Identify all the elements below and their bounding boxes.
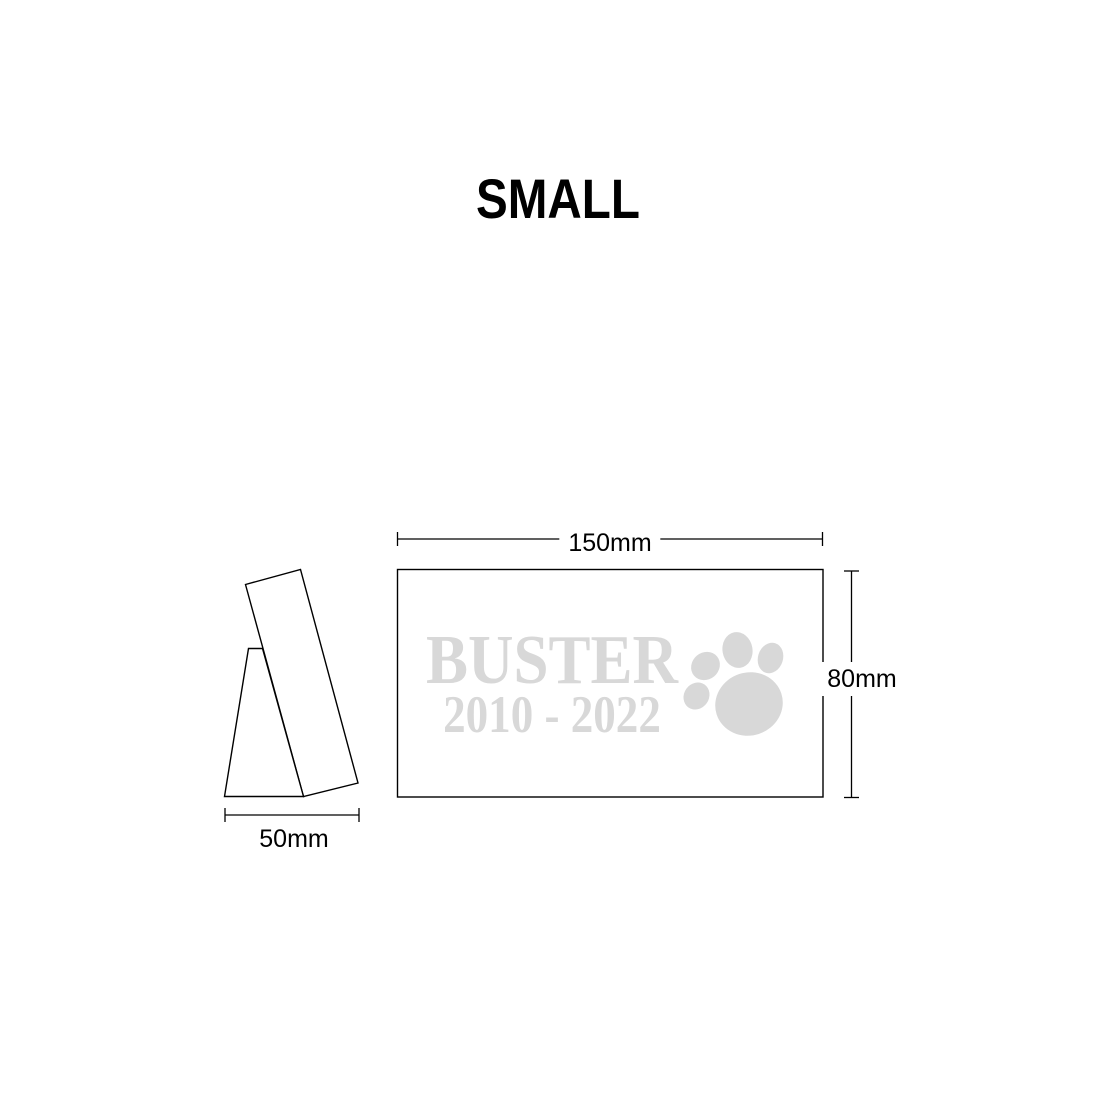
height-dimension-label: 80mm: [818, 662, 905, 696]
plaque-years-engraving: 2010 - 2022: [443, 689, 661, 742]
diagram-canvas: [0, 0, 1098, 1098]
product-size-diagram: SMALL: [0, 0, 1098, 1098]
depth-dimension-label: 50mm: [250, 822, 337, 856]
depth-dimension-line: [225, 808, 359, 822]
width-dimension-label: 150mm: [559, 526, 660, 560]
